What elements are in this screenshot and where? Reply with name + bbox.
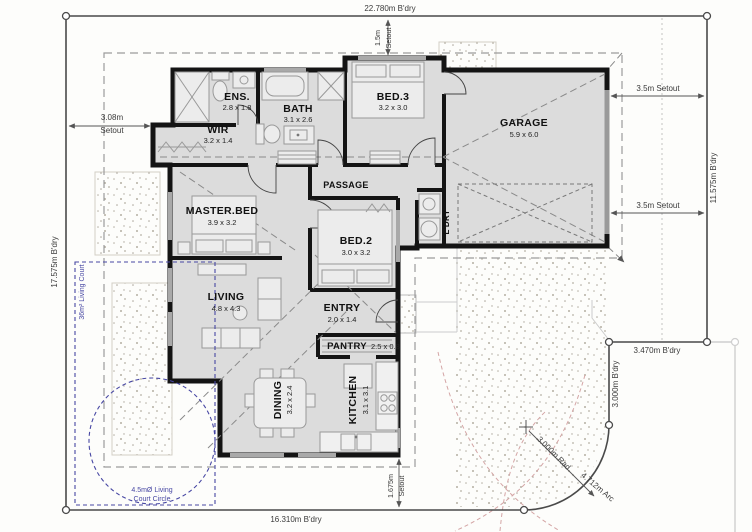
floor-plan-drawing: 22.780m B'dry 17.575m B'dry 11.575m B'dr…	[0, 0, 752, 532]
room-dims-bath: 3.1 x 2.6	[284, 115, 313, 124]
vanity-icon	[233, 72, 255, 88]
room-label-bath: BATH	[283, 103, 313, 115]
room-label-living: LIVING	[208, 291, 245, 303]
room-label-master: MASTER.BED	[186, 205, 259, 217]
tv-unit-icon	[198, 264, 246, 275]
paving-patch-west	[95, 172, 160, 255]
corner-boundary-label: 3.470m B'dry	[634, 346, 681, 355]
south-setout-value: 1.675m	[386, 474, 395, 498]
room-label-bed3: BED.3	[377, 91, 409, 103]
room-dims-living: 4.8 x 4.3	[212, 304, 241, 313]
corner-vertical-boundary-label: 3.000m B'dry	[611, 361, 620, 408]
paving-living-court	[112, 283, 172, 455]
room-label-bed2: BED.2	[340, 235, 372, 247]
room-dims-wir: 3.2 x 1.4	[204, 136, 233, 145]
north-setout-value: 1.5m	[373, 30, 382, 46]
room-dims-dining: 3.2 x 2.4	[285, 386, 294, 415]
sofa-icon	[202, 328, 260, 348]
north-setout-word: Setout	[384, 28, 393, 49]
paving-yard	[455, 249, 606, 507]
west-setout-value: 3.08m	[101, 113, 124, 122]
toilet-icon	[256, 124, 264, 144]
room-label-ldry: L'DRY	[442, 209, 451, 234]
room-label-kitchen: KITCHEN	[347, 376, 359, 425]
room-label-garage: GARAGE	[500, 117, 548, 129]
boundary-top-label: 22.780m B'dry	[364, 4, 415, 13]
room-dims-bed3: 3.2 x 3.0	[379, 103, 408, 112]
boundary-bottom-label: 16.310m B'dry	[270, 515, 321, 524]
boundary-right-label: 11.575m B'dry	[709, 153, 718, 204]
room-dims-entry: 2.0 x 1.4	[328, 315, 357, 324]
room-label-dining: DINING	[272, 381, 284, 420]
south-setout-word: Setout	[397, 476, 406, 497]
room-dims-garage: 5.9 x 6.0	[510, 130, 539, 139]
room-dims-ens: 2.8 x 1.8	[223, 103, 252, 112]
entry-porch-slab	[399, 295, 416, 333]
room-label-passage: PASSAGE	[323, 180, 368, 190]
room-label-wir: WIR	[207, 124, 228, 136]
east-setout-top: 3.5m Setout	[636, 84, 680, 93]
room-dims-kitchen: 3.1 x 3.1	[361, 386, 370, 415]
room-dims-master: 3.9 x 3.2	[208, 218, 237, 227]
room-dims-bed2: 3.0 x 3.2	[342, 248, 371, 257]
living-court-circle-label-1: 4.5mØ Living	[131, 487, 172, 494]
floor-plan-sheet: 22.780m B'dry 17.575m B'dry 11.575m B'dr…	[0, 0, 752, 532]
eave-hip-ne	[608, 53, 622, 69]
room-dims-pantry: 2.5 x 0.8	[371, 342, 400, 351]
room-label-ens: ENS.	[224, 91, 250, 103]
living-court-circle-label-2: Court Circle	[134, 496, 171, 503]
west-setout-word: Setout	[100, 126, 124, 135]
toilet-icon	[212, 72, 229, 80]
kitchen-bench	[320, 432, 398, 452]
boundary-left-label: 17.575m B'dry	[50, 236, 59, 287]
room-label-entry: ENTRY	[324, 302, 361, 314]
paving-patch-north	[439, 42, 496, 68]
laundry-tub-icon	[419, 194, 440, 214]
east-setout-bottom: 3.5m Setout	[636, 201, 680, 210]
room-label-pantry: PANTRY	[327, 341, 367, 352]
living-court-area-label: 36m² Living Court	[79, 264, 86, 319]
